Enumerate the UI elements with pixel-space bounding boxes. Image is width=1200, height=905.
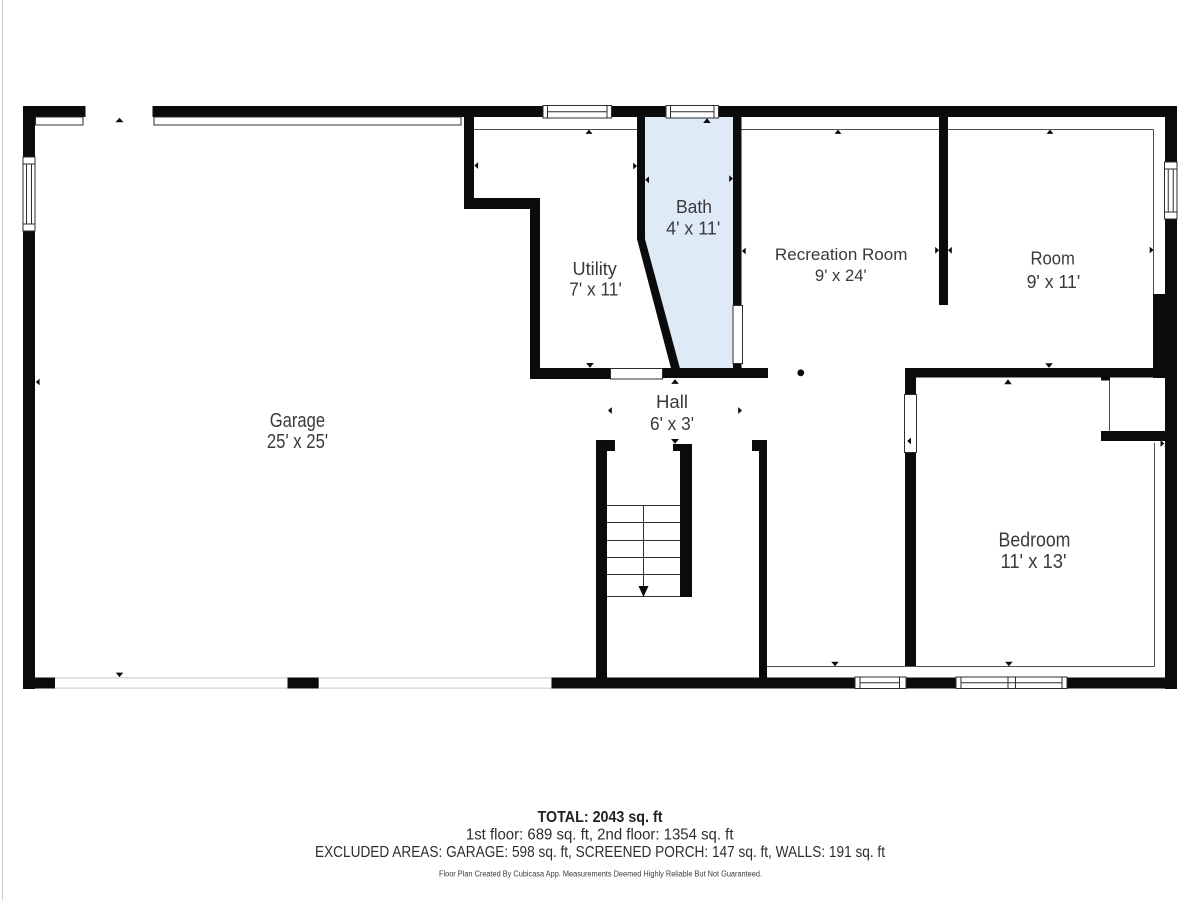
- svg-text:Garage: Garage: [270, 410, 325, 432]
- svg-text:Bedroom: Bedroom: [999, 530, 1071, 552]
- svg-text:11' x 13': 11' x 13': [1000, 551, 1066, 573]
- svg-text:Bath: Bath: [676, 197, 712, 217]
- svg-text:9' x 11': 9' x 11': [1027, 271, 1081, 292]
- svg-text:Utility: Utility: [573, 259, 617, 279]
- svg-text:EXCLUDED AREAS: GARAGE: 598 sq: EXCLUDED AREAS: GARAGE: 598 sq. ft, SCRE…: [315, 844, 885, 861]
- svg-text:Recreation Room: Recreation Room: [775, 246, 908, 264]
- svg-text:6' x 3': 6' x 3': [650, 413, 694, 434]
- svg-text:Floor Plan Created By Cubicasa: Floor Plan Created By Cubicasa App. Meas…: [439, 870, 762, 879]
- svg-text:25' x 25': 25' x 25': [267, 431, 328, 453]
- svg-text:Room: Room: [1031, 248, 1075, 269]
- svg-text:1st floor: 689 sq. ft, 2nd flo: 1st floor: 689 sq. ft, 2nd floor: 1354 s…: [466, 827, 734, 844]
- svg-text:Hall: Hall: [656, 391, 688, 412]
- svg-text:7' x 11': 7' x 11': [569, 280, 622, 300]
- svg-text:4' x 11': 4' x 11': [666, 219, 720, 239]
- svg-text:9' x 24': 9' x 24': [815, 267, 867, 285]
- svg-text:TOTAL: 2043 sq. ft: TOTAL: 2043 sq. ft: [538, 809, 664, 826]
